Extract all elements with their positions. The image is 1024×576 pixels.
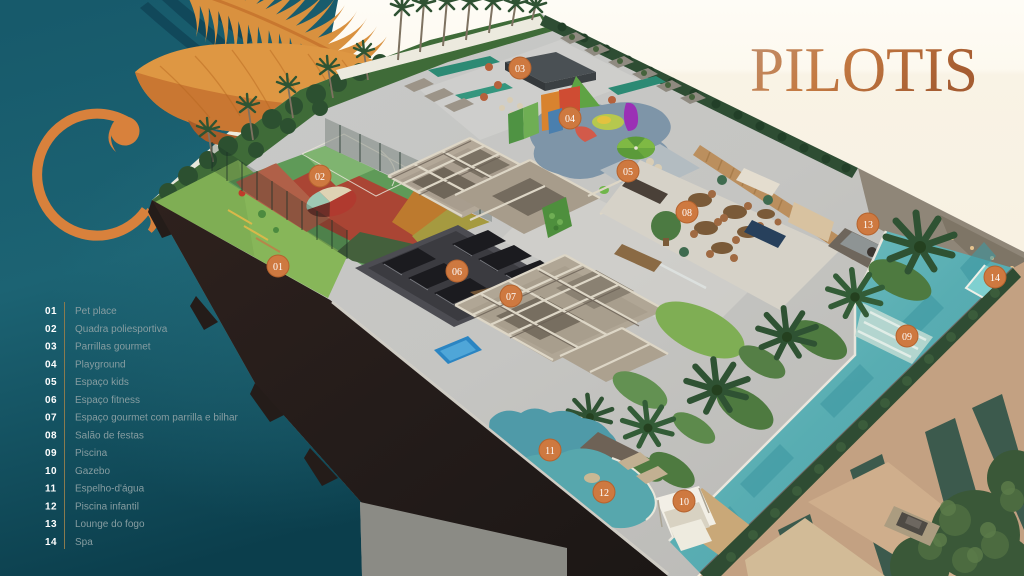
svg-text:Quadra poliesportiva: Quadra poliesportiva <box>75 324 168 335</box>
svg-text:Gazebo: Gazebo <box>75 466 110 477</box>
svg-text:01: 01 <box>273 262 283 273</box>
svg-text:Lounge do fogo: Lounge do fogo <box>75 519 145 530</box>
svg-text:10: 10 <box>679 497 689 508</box>
svg-text:02: 02 <box>315 172 325 183</box>
svg-text:13: 13 <box>863 220 873 231</box>
svg-text:04: 04 <box>565 114 575 125</box>
svg-text:Salão de festas: Salão de festas <box>75 430 144 441</box>
svg-text:03: 03 <box>45 342 57 353</box>
svg-text:06: 06 <box>452 267 462 278</box>
svg-text:Spa: Spa <box>75 537 93 548</box>
svg-text:05: 05 <box>45 377 57 388</box>
svg-text:05: 05 <box>623 167 633 178</box>
svg-text:Playground: Playground <box>75 359 126 370</box>
svg-text:Espaço fitness: Espaço fitness <box>75 395 140 406</box>
svg-text:Espelho-d'água: Espelho-d'água <box>75 484 145 495</box>
svg-text:07: 07 <box>45 413 57 424</box>
svg-text:06: 06 <box>45 395 57 406</box>
svg-text:13: 13 <box>45 519 57 530</box>
svg-text:01: 01 <box>45 306 57 317</box>
svg-text:09: 09 <box>902 332 912 343</box>
svg-text:07: 07 <box>506 292 516 303</box>
svg-text:14: 14 <box>45 537 57 548</box>
svg-text:09: 09 <box>45 448 57 459</box>
svg-text:10: 10 <box>45 466 57 477</box>
svg-text:12: 12 <box>45 501 57 512</box>
svg-text:08: 08 <box>682 208 692 219</box>
svg-text:08: 08 <box>45 430 57 441</box>
svg-text:04: 04 <box>45 359 57 370</box>
svg-text:12: 12 <box>599 488 609 499</box>
svg-text:Piscina infantil: Piscina infantil <box>75 501 139 512</box>
svg-text:Espaço kids: Espaço kids <box>75 377 129 388</box>
svg-text:03: 03 <box>515 64 525 75</box>
svg-text:11: 11 <box>45 484 57 495</box>
svg-text:14: 14 <box>990 273 1000 284</box>
svg-text:Piscina: Piscina <box>75 448 108 459</box>
svg-text:PILOTIS: PILOTIS <box>750 35 978 105</box>
svg-text:Espaço gourmet com parrilla e: Espaço gourmet com parrilla e bilhar <box>75 413 239 424</box>
svg-text:Pet place: Pet place <box>75 306 117 317</box>
svg-text:11: 11 <box>545 446 555 457</box>
svg-text:Parrillas gourmet: Parrillas gourmet <box>75 342 151 353</box>
svg-text:02: 02 <box>45 324 57 335</box>
